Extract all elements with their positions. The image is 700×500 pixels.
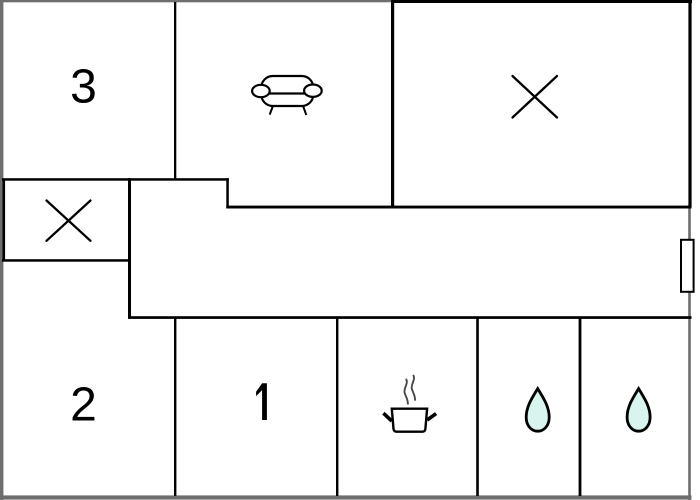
svg-text:2: 2 <box>70 378 97 431</box>
svg-text:3: 3 <box>70 60 97 113</box>
